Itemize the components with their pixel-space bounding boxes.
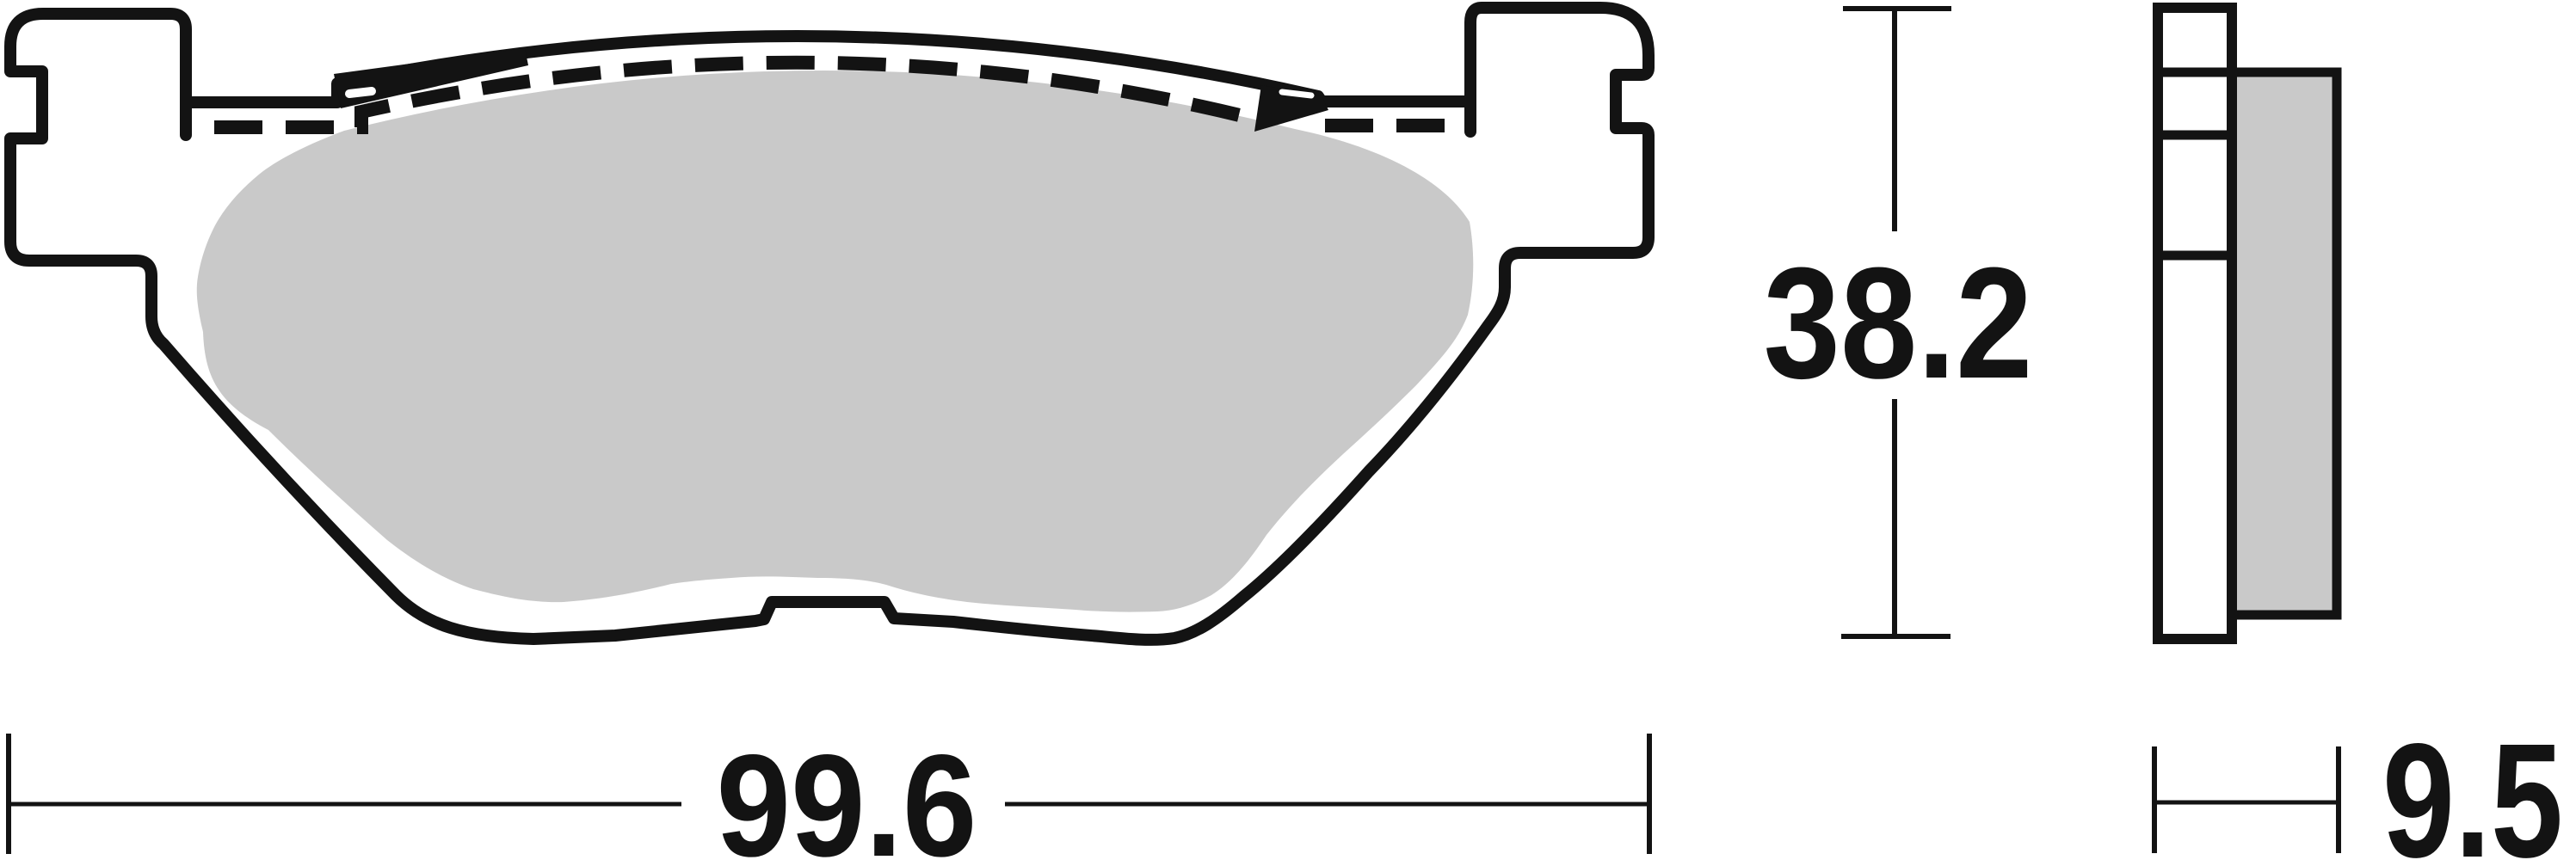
svg-text:38.2: 38.2 [1764,234,2033,411]
svg-text:99.6: 99.6 [717,724,977,860]
svg-text:9.5: 9.5 [2382,710,2563,860]
